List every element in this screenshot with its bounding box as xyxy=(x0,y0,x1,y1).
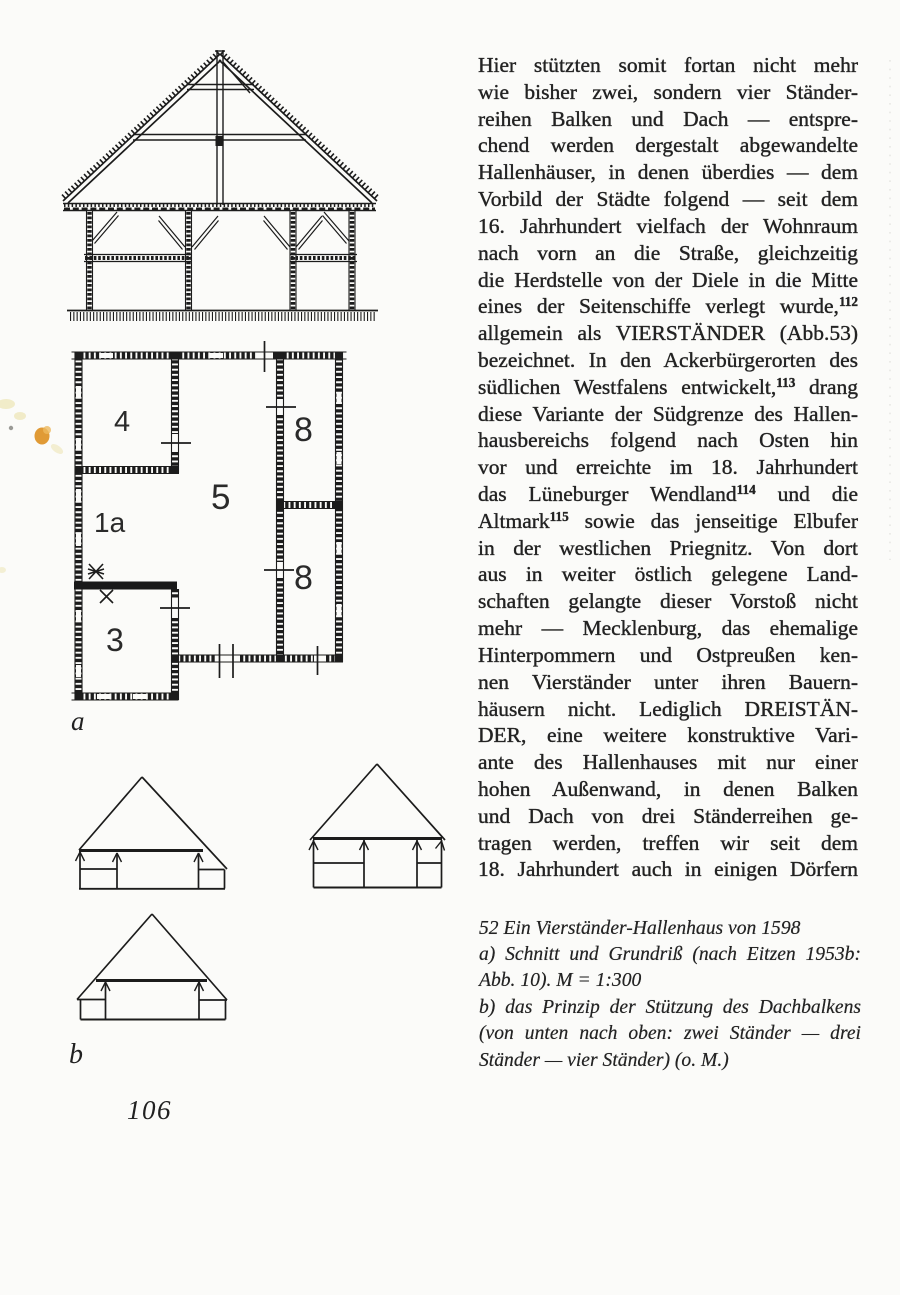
svg-text:8: 8 xyxy=(294,411,313,449)
svg-text:1a: 1a xyxy=(94,507,126,538)
svg-text:8: 8 xyxy=(294,559,313,597)
svg-text:3: 3 xyxy=(106,622,124,658)
svg-text:5: 5 xyxy=(211,478,230,517)
svg-text:4: 4 xyxy=(114,406,130,438)
